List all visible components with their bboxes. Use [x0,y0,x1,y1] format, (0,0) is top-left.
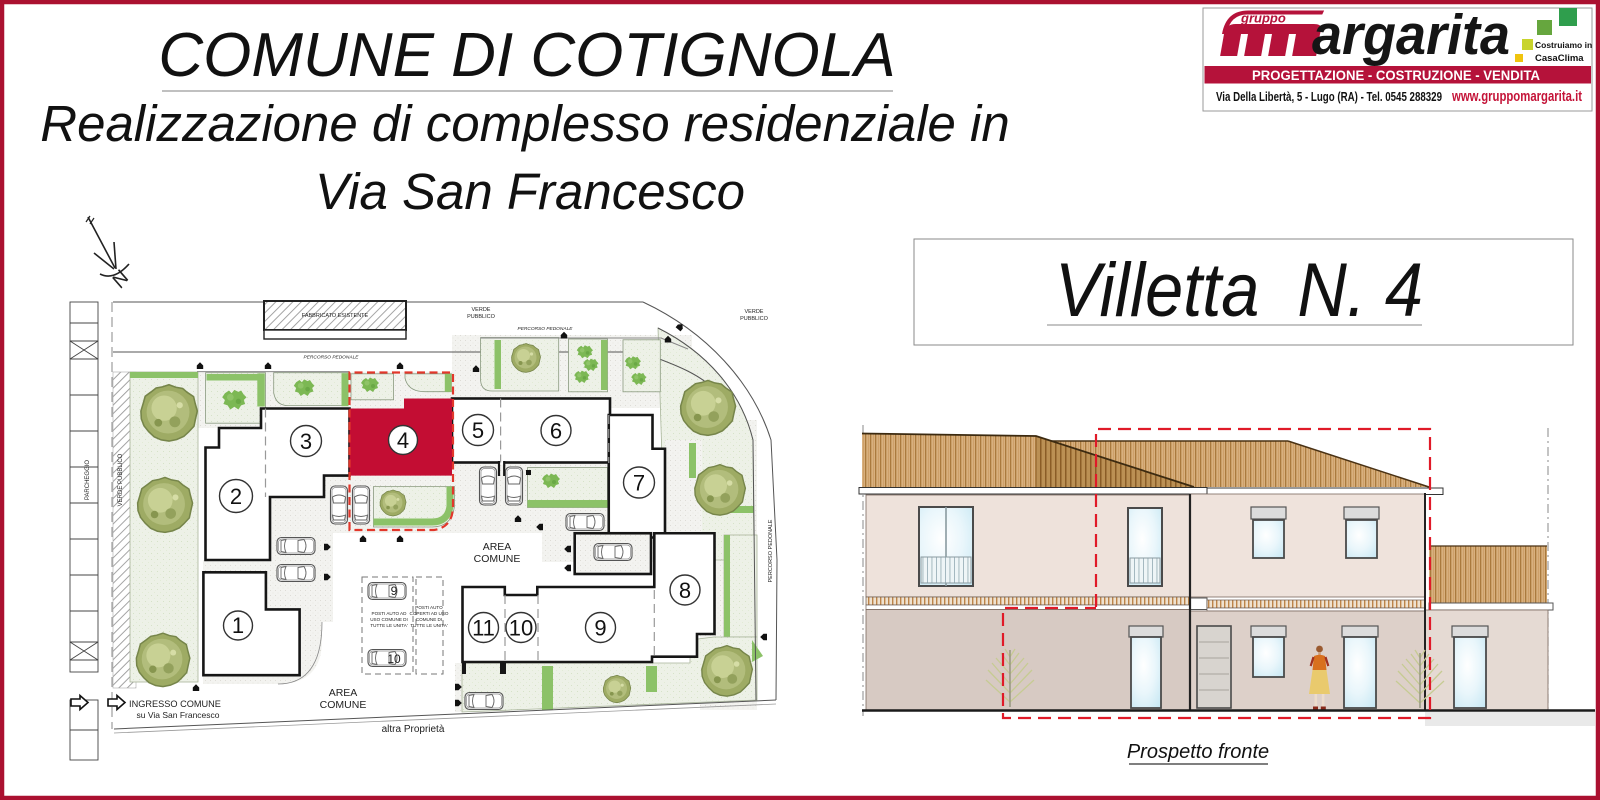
svg-text:PERCORSO PEDONALE: PERCORSO PEDONALE [304,355,360,361]
svg-text:9: 9 [391,584,398,598]
svg-text:POSTI AUTO AD: POSTI AUTO AD [372,611,408,616]
svg-text:COMUNE DI COTIGNOLA: COMUNE DI COTIGNOLA [158,21,895,90]
svg-text:9: 9 [594,616,606,641]
svg-text:Costruiamo in: Costruiamo in [1535,40,1592,50]
svg-text:7: 7 [633,471,645,496]
svg-text:www.gruppomargarita.it: www.gruppomargarita.it [1451,89,1582,105]
svg-text:COMUNE: COMUNE [474,553,521,565]
svg-text:argarita: argarita [1312,3,1510,67]
svg-text:3: 3 [300,429,312,454]
svg-text:altra Proprietà: altra Proprietà [382,724,445,735]
svg-text:2: 2 [230,484,242,509]
svg-text:Prospetto fronte: Prospetto fronte [1127,741,1269,763]
svg-text:PUBBLICO: PUBBLICO [467,314,496,320]
svg-text:1: 1 [232,613,244,638]
svg-text:COMUNE DI: COMUNE DI [416,617,442,622]
svg-text:FABBRICATO ESISTENTE: FABBRICATO ESISTENTE [302,313,369,319]
svg-text:4: 4 [397,428,409,453]
svg-text:6: 6 [550,419,562,444]
svg-text:TUTTE LE UNITA': TUTTE LE UNITA' [370,623,407,628]
svg-text:VERDE: VERDE [745,309,764,315]
svg-text:Realizzazione di complesso res: Realizzazione di complesso residenziale … [40,95,1010,152]
svg-text:11: 11 [472,616,495,641]
svg-text:CasaClima: CasaClima [1535,53,1584,64]
svg-text:PUBBLICO: PUBBLICO [740,316,769,322]
svg-text:su Via San Francesco: su Via San Francesco [137,710,220,720]
svg-text:PERCORSO PEDONALE: PERCORSO PEDONALE [518,326,574,332]
svg-text:10: 10 [387,652,401,666]
svg-text:Via Della Libertà, 5 - Lugo (R: Via Della Libertà, 5 - Lugo (RA) - Tel. … [1216,89,1442,104]
svg-text:COMUNE: COMUNE [320,699,367,711]
svg-text:PROGETTAZIONE - COSTRUZIONE: PROGETTAZIONE - COSTRUZIONE - VENDITA [1252,68,1540,83]
svg-text:VERDE PUBBLICO: VERDE PUBBLICO [118,453,124,506]
svg-text:AREA: AREA [483,541,512,553]
svg-text:USO COMUNE DI: USO COMUNE DI [370,617,408,622]
svg-text:AREA: AREA [329,687,358,699]
svg-text:Via San Francesco: Via San Francesco [315,163,745,220]
svg-text:PERCORSO PEDONALE: PERCORSO PEDONALE [768,519,774,582]
svg-text:POSTI AUTO: POSTI AUTO [415,605,443,610]
svg-text:5: 5 [472,418,484,443]
svg-text:INGRESSO COMUNE: INGRESSO COMUNE [129,699,221,709]
svg-text:gruppo: gruppo [1240,11,1286,26]
svg-text:COPERTI AD USO: COPERTI AD USO [410,611,449,616]
svg-text:TUTTE LE UNITA': TUTTE LE UNITA' [410,623,447,628]
svg-text:PARCHEGGIO: PARCHEGGIO [85,460,91,501]
svg-text:8: 8 [679,578,691,603]
svg-text:10: 10 [509,616,533,641]
svg-text:VERDE: VERDE [472,307,491,313]
svg-text:Villetta N. 4: Villetta N. 4 [1055,248,1423,333]
